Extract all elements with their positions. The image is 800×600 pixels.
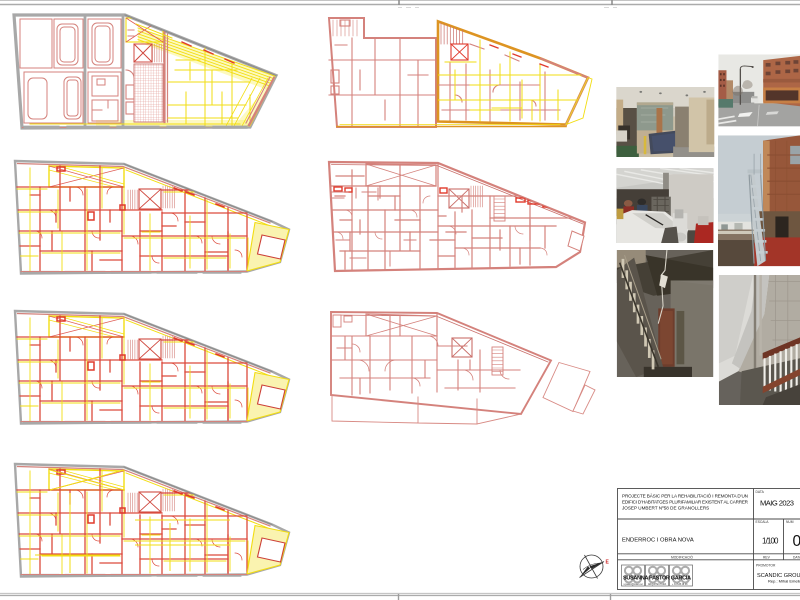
svg-text:SUSANNA PASTOR GARCIA: SUSANNA PASTOR GARCIA bbox=[623, 576, 691, 582]
svg-text:ESCALA: ESCALA bbox=[756, 520, 770, 524]
svg-text:+ 34 638 48 48: + 34 638 48 48 bbox=[672, 584, 688, 586]
svg-text:EDIFICI D’HABITATGES PLURIFA: EDIFICI D’HABITATGES PLURIFAMILIAR EXIST… bbox=[622, 500, 749, 505]
svg-text:PROMOTOR: PROMOTOR bbox=[756, 564, 776, 568]
svg-text:MODIFICACIÓ: MODIFICACIÓ bbox=[671, 554, 693, 559]
svg-text:s.pastor@coac.net: s.pastor@coac.net bbox=[624, 583, 644, 586]
svg-text:1/100: 1/100 bbox=[762, 537, 779, 546]
svg-text:NUM: NUM bbox=[786, 520, 794, 524]
svg-text:JOSEP UMBERT Nº58 DE GRANOLLER: JOSEP UMBERT Nº58 DE GRANOLLERS bbox=[622, 506, 709, 511]
svg-text:ARQUITECTURA: ARQUITECTURA bbox=[648, 583, 667, 586]
svg-text:ENDERROC I OBRA NOVA: ENDERROC I OBRA NOVA bbox=[622, 538, 694, 544]
svg-text:MAIG 2023: MAIG 2023 bbox=[760, 499, 794, 508]
svg-text:REV: REV bbox=[763, 555, 771, 559]
svg-text:E: E bbox=[606, 560, 610, 566]
svg-text:PROJECTE BÀSIC PER LA REHA: PROJECTE BÀSIC PER LA REHABILITACIÓ I RE… bbox=[622, 493, 748, 499]
svg-text:DATA: DATA bbox=[793, 555, 800, 559]
svg-text:Rep.: Mihal Emelianov: Rep.: Mihal Emelianov bbox=[768, 579, 800, 584]
svg-text:0: 0 bbox=[793, 533, 800, 550]
svg-text:DATA: DATA bbox=[756, 490, 765, 494]
